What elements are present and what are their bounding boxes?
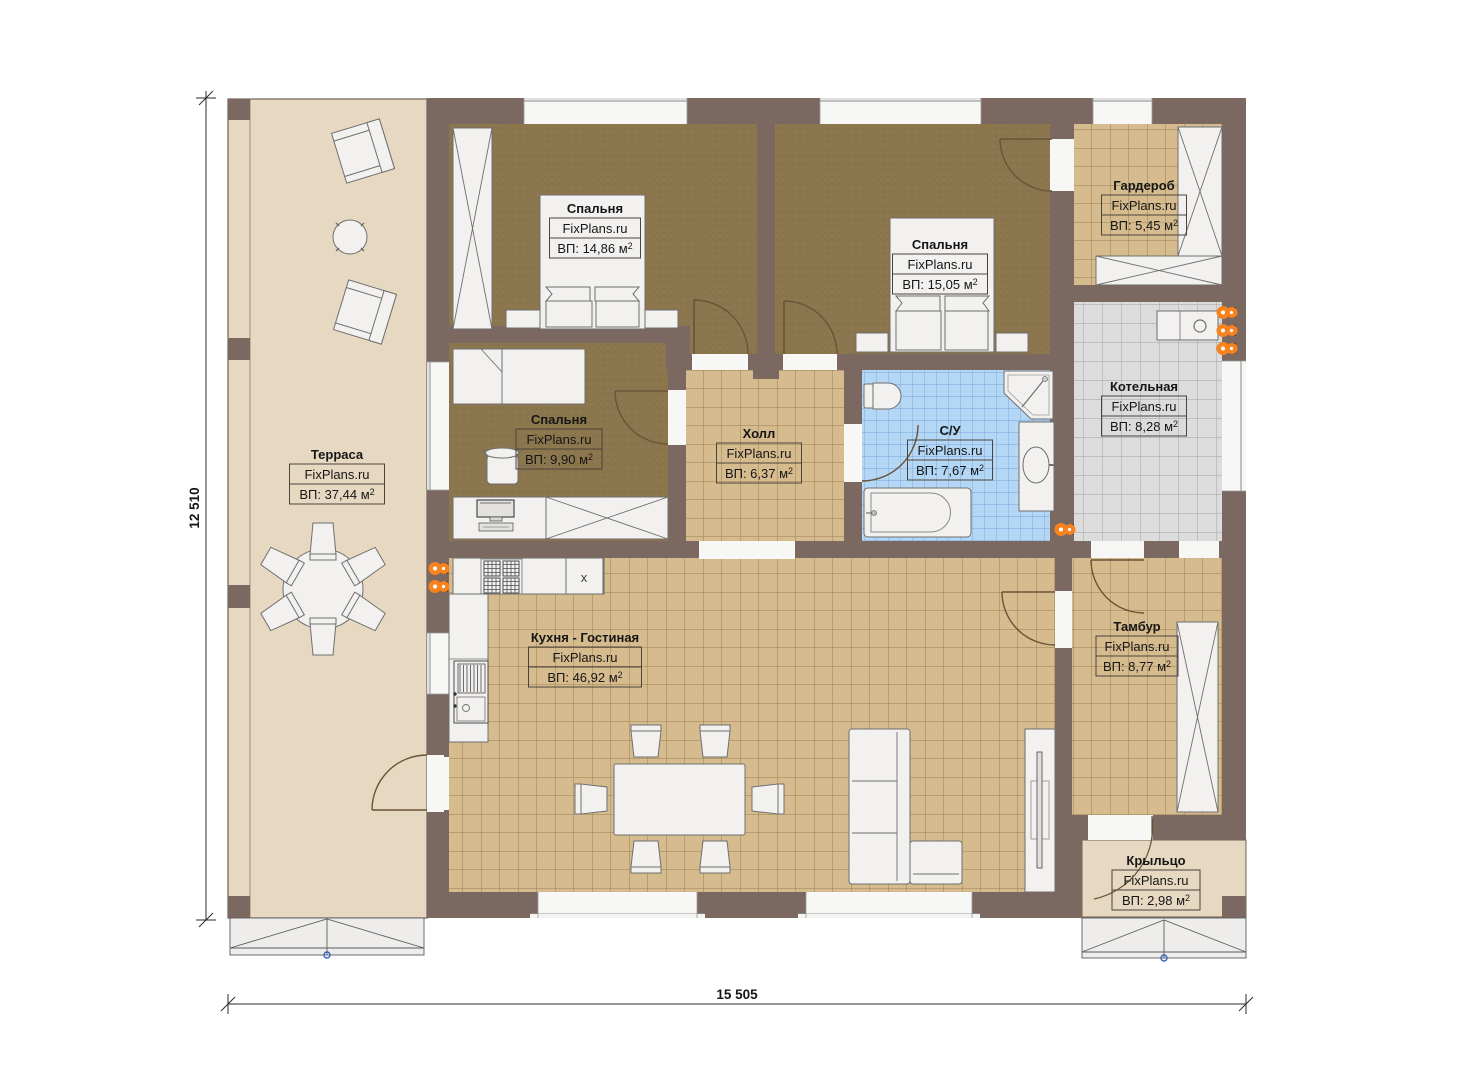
svg-text:Тамбур: Тамбур (1113, 619, 1160, 634)
svg-text:Крыльцо: Крыльцо (1126, 853, 1185, 868)
svg-text:FixPlans.ru: FixPlans.ru (304, 467, 369, 482)
svg-text:ВП: 37,44 м2: ВП: 37,44 м2 (299, 487, 374, 502)
svg-text:FixPlans.ru: FixPlans.ru (907, 257, 972, 272)
svg-text:ВП: 5,45 м2: ВП: 5,45 м2 (1110, 218, 1178, 233)
svg-text:ВП: 14,86 м2: ВП: 14,86 м2 (557, 241, 632, 256)
svg-text:ВП: 7,67 м2: ВП: 7,67 м2 (916, 463, 984, 478)
svg-text:ВП: 46,92 м2: ВП: 46,92 м2 (547, 670, 622, 685)
svg-text:FixPlans.ru: FixPlans.ru (1123, 873, 1188, 888)
svg-text:FixPlans.ru: FixPlans.ru (552, 650, 617, 665)
svg-text:FixPlans.ru: FixPlans.ru (1104, 639, 1169, 654)
svg-text:ВП: 6,37 м2: ВП: 6,37 м2 (725, 466, 793, 481)
svg-text:Спальня: Спальня (567, 201, 623, 216)
svg-text:Холл: Холл (743, 426, 776, 441)
svg-text:ВП: 2,98 м2: ВП: 2,98 м2 (1122, 893, 1190, 908)
svg-text:ВП: 8,28 м2: ВП: 8,28 м2 (1110, 419, 1178, 434)
svg-text:Спальня: Спальня (531, 412, 587, 427)
svg-text:FixPlans.ru: FixPlans.ru (526, 432, 591, 447)
svg-text:Гардероб: Гардероб (1113, 178, 1174, 193)
svg-text:FixPlans.ru: FixPlans.ru (1111, 198, 1176, 213)
svg-text:Котельная: Котельная (1110, 379, 1178, 394)
svg-text:x: x (581, 570, 588, 585)
svg-text:ВП: 9,90 м2: ВП: 9,90 м2 (525, 452, 593, 467)
svg-text:С/У: С/У (939, 423, 961, 438)
svg-text:ВП: 15,05 м2: ВП: 15,05 м2 (902, 277, 977, 292)
svg-text:ВП: 8,77 м2: ВП: 8,77 м2 (1103, 659, 1171, 674)
svg-text:Спальня: Спальня (912, 237, 968, 252)
svg-text:FixPlans.ru: FixPlans.ru (726, 446, 791, 461)
svg-text:FixPlans.ru: FixPlans.ru (562, 221, 627, 236)
svg-text:12 510: 12 510 (187, 487, 202, 528)
svg-text:15 505: 15 505 (716, 987, 758, 1002)
svg-text:Кухня - Гостиная: Кухня - Гостиная (531, 630, 639, 645)
svg-text:Терраса: Терраса (311, 447, 364, 462)
svg-text:FixPlans.ru: FixPlans.ru (1111, 399, 1176, 414)
svg-text:FixPlans.ru: FixPlans.ru (917, 443, 982, 458)
